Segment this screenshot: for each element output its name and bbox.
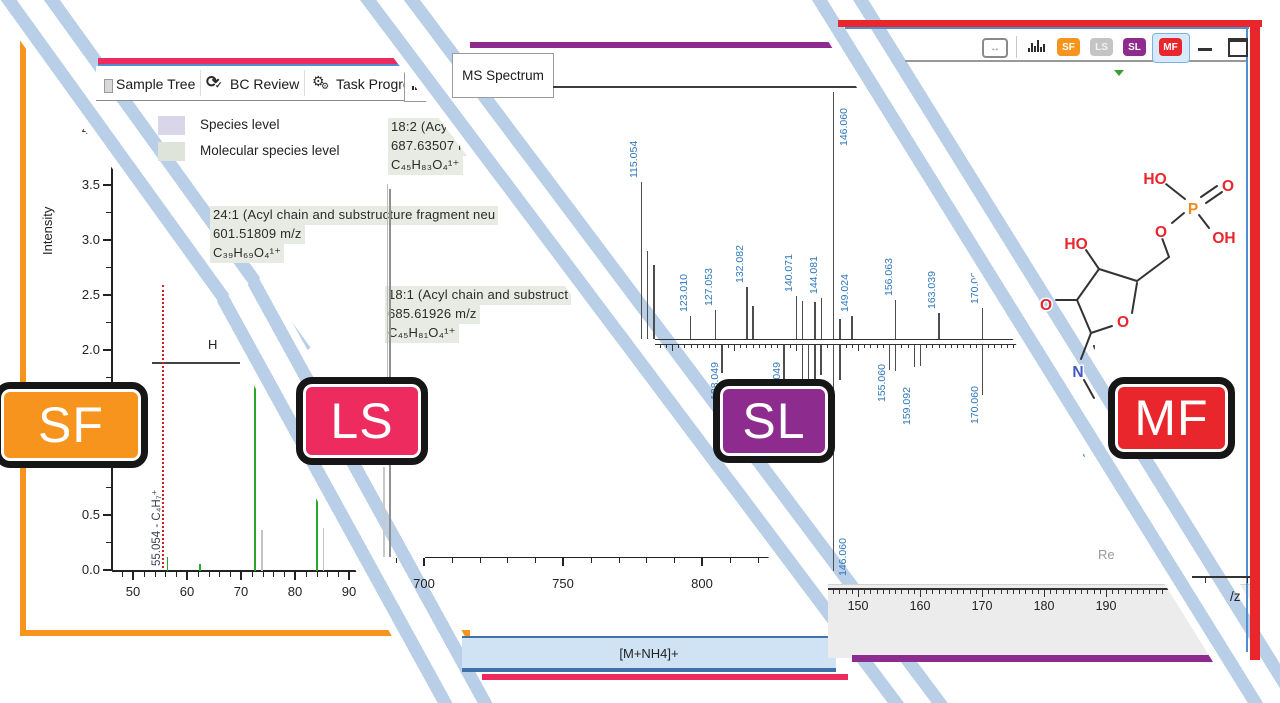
sl-badge: SL — [713, 379, 835, 463]
toolbar-separator — [1016, 36, 1017, 58]
mf-badge: MF — [1108, 377, 1235, 459]
atom-o-double: O — [1222, 178, 1234, 195]
toolbar-mf-icon[interactable]: MF — [1159, 38, 1182, 56]
atom-p: P — [1188, 201, 1198, 218]
bar — [1028, 48, 1030, 52]
minimize-icon[interactable] — [1198, 48, 1212, 51]
axis-tick — [1247, 578, 1248, 583]
mz-axis-label-fragment: /z — [1230, 589, 1241, 604]
toolbar-sl-icon[interactable]: SL — [1123, 38, 1146, 56]
bar — [1040, 47, 1042, 52]
screenshot-collage: Intensity H 0.00.51.01.52.02.53.03.54.05… — [0, 0, 1280, 703]
atom-ho-top: HO — [1143, 171, 1166, 188]
dropdown-arrow-icon[interactable] — [1114, 70, 1124, 76]
atom-o-left: O — [1040, 297, 1052, 314]
toolbar-sf-icon[interactable]: SF — [1057, 38, 1080, 56]
ls-badge: LS — [296, 377, 428, 465]
mf-window-top-border — [838, 20, 1262, 27]
mf-axis-fragment — [1192, 576, 1250, 578]
mf-window-top-accent — [845, 27, 1249, 29]
atom-n: N — [1072, 364, 1083, 381]
mf-window: ↔ SF LS SL MF — [0, 0, 1280, 703]
fit-width-icon[interactable]: ↔ — [982, 38, 1008, 58]
toolbar-ls-icon[interactable]: LS — [1090, 38, 1113, 56]
atom-o-ester: O — [1155, 224, 1167, 241]
maximize-icon[interactable] — [1228, 38, 1248, 57]
atom-oh-right: OH — [1212, 230, 1235, 247]
atom-ho-ring: HO — [1064, 236, 1087, 253]
bar — [1037, 40, 1039, 52]
bar — [1043, 44, 1045, 52]
atom-o-ring: O — [1117, 314, 1129, 331]
mf-toolbar-divider — [905, 60, 1246, 62]
sf-badge: SF — [0, 382, 148, 468]
bar — [1034, 46, 1036, 52]
axis-tick — [1205, 578, 1206, 583]
bar — [1031, 43, 1033, 52]
